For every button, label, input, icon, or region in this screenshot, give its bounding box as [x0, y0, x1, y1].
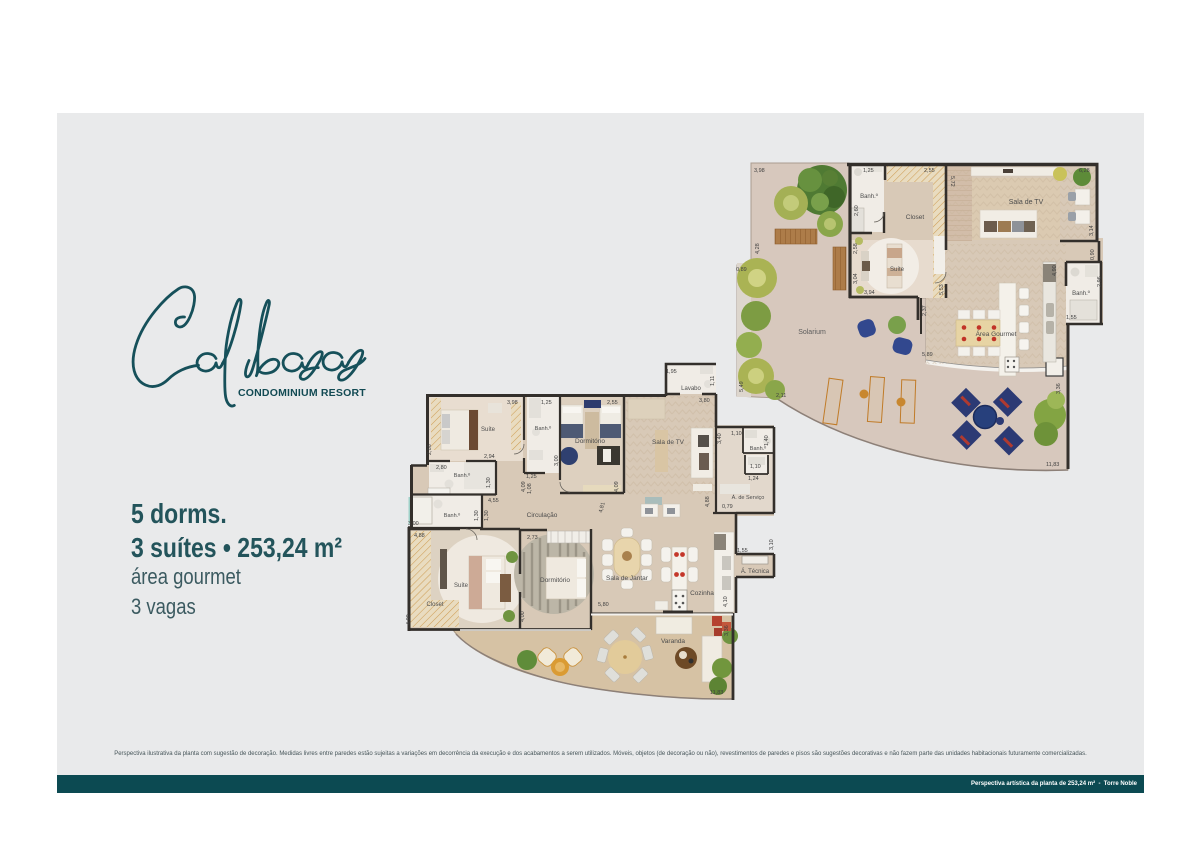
svg-text:2,80: 2,80: [436, 465, 447, 471]
svg-text:Solarium: Solarium: [798, 329, 826, 336]
svg-text:0,79: 0,79: [722, 504, 733, 510]
svg-text:5,72: 5,72: [949, 176, 955, 187]
svg-text:1,30: 1,30: [486, 477, 492, 488]
svg-text:2,55: 2,55: [607, 400, 618, 406]
svg-text:1,10: 1,10: [731, 431, 742, 437]
svg-text:Suíte: Suíte: [481, 427, 496, 433]
svg-text:3,00: 3,00: [554, 455, 560, 466]
svg-text:Á. Técnica: Á. Técnica: [741, 568, 770, 575]
svg-text:4,90: 4,90: [1052, 265, 1058, 276]
svg-text:2,94: 2,94: [484, 454, 495, 460]
svg-text:2,73: 2,73: [527, 535, 538, 541]
svg-text:3,04: 3,04: [853, 273, 859, 284]
svg-text:4,10: 4,10: [723, 596, 729, 607]
svg-text:1,08: 1,08: [527, 483, 533, 494]
svg-text:4,55: 4,55: [488, 498, 499, 504]
svg-text:Sala de TV: Sala de TV: [652, 439, 685, 446]
svg-text:Banh.º: Banh.º: [860, 193, 879, 200]
svg-text:2,96: 2,96: [1097, 276, 1103, 287]
svg-text:3,94: 3,94: [864, 290, 875, 296]
svg-text:1,95: 1,95: [666, 369, 677, 375]
svg-text:Suíte: Suíte: [890, 267, 905, 273]
svg-text:Varanda: Varanda: [661, 638, 685, 645]
svg-text:1,55: 1,55: [737, 548, 748, 554]
svg-text:3,98: 3,98: [507, 400, 518, 406]
svg-text:1,25: 1,25: [526, 474, 537, 480]
svg-text:4,00: 4,00: [406, 614, 412, 625]
svg-text:2,55: 2,55: [924, 168, 935, 174]
svg-text:2,37: 2,37: [922, 305, 928, 316]
svg-text:3,36: 3,36: [724, 625, 730, 636]
svg-text:1,10: 1,10: [750, 464, 761, 470]
svg-text:Á. de Serviço: Á. de Serviço: [732, 494, 765, 501]
svg-text:2,86: 2,86: [427, 444, 433, 455]
svg-text:3,36: 3,36: [1056, 383, 1062, 394]
svg-text:3,98: 3,98: [754, 168, 765, 174]
svg-text:5,80: 5,80: [598, 602, 609, 608]
svg-text:Cozinha: Cozinha: [690, 590, 714, 597]
svg-text:Banh.º: Banh.º: [535, 425, 551, 432]
svg-text:3,00: 3,00: [408, 521, 419, 527]
svg-text:1,55: 1,55: [1066, 315, 1077, 321]
svg-text:5,89: 5,89: [922, 352, 933, 358]
svg-text:Sala de Jantar: Sala de Jantar: [606, 575, 649, 582]
svg-text:4,09: 4,09: [614, 481, 620, 492]
svg-text:1,30: 1,30: [484, 510, 490, 521]
svg-text:4,88: 4,88: [705, 496, 711, 507]
svg-text:3,14: 3,14: [1089, 225, 1095, 236]
svg-text:11,83: 11,83: [710, 690, 723, 696]
svg-text:Dormitório: Dormitório: [575, 438, 605, 445]
svg-text:11,83: 11,83: [1046, 462, 1059, 468]
svg-text:6,28: 6,28: [1079, 168, 1090, 174]
svg-text:1,25: 1,25: [863, 168, 874, 174]
svg-text:2,60: 2,60: [854, 205, 860, 216]
svg-text:1,40: 1,40: [764, 435, 770, 446]
svg-text:Closet: Closet: [426, 602, 443, 608]
svg-text:Closet: Closet: [906, 214, 925, 221]
svg-text:2,58: 2,58: [853, 243, 859, 254]
svg-text:3,10: 3,10: [769, 539, 775, 550]
svg-text:Dormitório: Dormitório: [540, 577, 570, 584]
svg-text:0,90: 0,90: [1090, 249, 1096, 260]
svg-text:0,89: 0,89: [736, 267, 747, 273]
svg-text:1,30: 1,30: [474, 510, 480, 521]
svg-text:5,53: 5,53: [939, 284, 945, 295]
svg-text:Banh.º: Banh.º: [454, 472, 470, 479]
svg-text:3,40: 3,40: [717, 433, 723, 444]
svg-text:Banh.º: Banh.º: [444, 512, 460, 519]
svg-text:1,11: 1,11: [710, 376, 716, 386]
svg-text:1,25: 1,25: [541, 400, 552, 406]
svg-text:4,28: 4,28: [755, 243, 761, 254]
svg-text:4,00: 4,00: [520, 611, 526, 622]
svg-text:Suíte: Suíte: [454, 583, 469, 589]
svg-text:Área Gourmet: Área Gourmet: [976, 329, 1017, 338]
svg-text:Circulação: Circulação: [527, 512, 558, 519]
svg-text:1,24: 1,24: [748, 476, 759, 482]
svg-text:3,80: 3,80: [699, 398, 710, 404]
svg-text:Lavabo: Lavabo: [681, 386, 701, 392]
svg-text:4,88: 4,88: [414, 533, 425, 539]
svg-text:Banh.º: Banh.º: [1072, 290, 1091, 297]
svg-text:Sala de TV: Sala de TV: [1009, 199, 1044, 206]
